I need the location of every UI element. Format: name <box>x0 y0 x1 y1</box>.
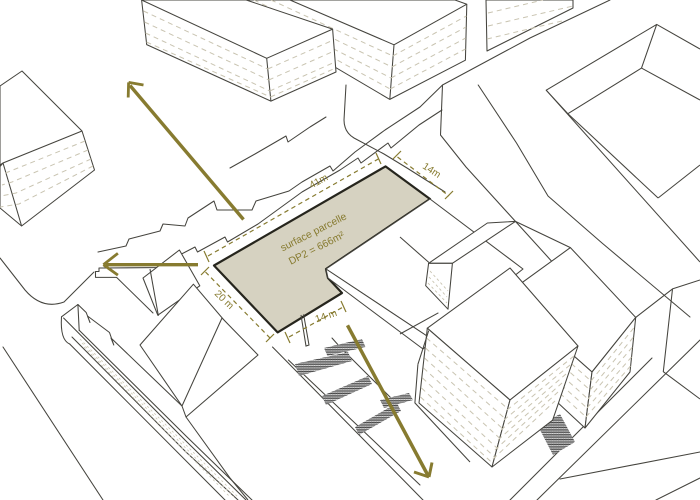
svg-text:14 m: 14 m <box>314 308 339 325</box>
svg-text:20 m: 20 m <box>212 289 236 312</box>
